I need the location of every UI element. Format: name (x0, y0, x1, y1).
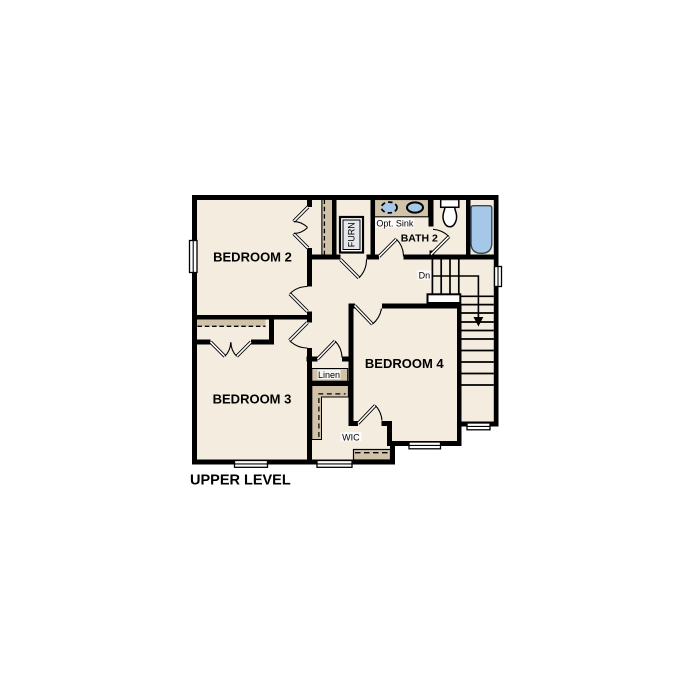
svg-text:Opt. Sink: Opt. Sink (376, 218, 414, 228)
svg-text:BEDROOM 4: BEDROOM 4 (365, 356, 445, 371)
svg-text:FURN: FURN (347, 222, 357, 247)
svg-text:UPPER LEVEL: UPPER LEVEL (190, 473, 291, 489)
svg-text:WIC: WIC (342, 432, 360, 442)
svg-text:Dn: Dn (419, 271, 431, 281)
svg-text:Linen: Linen (318, 370, 340, 380)
svg-text:BATH 2: BATH 2 (401, 233, 438, 245)
svg-text:BEDROOM 3: BEDROOM 3 (213, 392, 292, 407)
svg-text:BEDROOM 2: BEDROOM 2 (213, 250, 292, 265)
